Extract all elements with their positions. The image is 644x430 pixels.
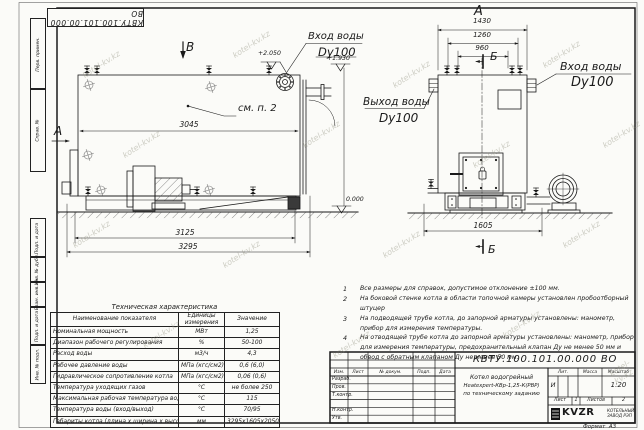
note-number: 2 xyxy=(343,294,360,314)
spec-cell-units: мм xyxy=(179,416,225,427)
spec-row: Рабочее давление водыМПа (кгс/см2)0,6 (6… xyxy=(51,360,280,371)
margin-label: Инв. № подл. xyxy=(36,348,41,380)
dim-960: 960 xyxy=(452,44,512,52)
spec-row: Температура уходящих газов°Сне более 250 xyxy=(51,382,280,393)
spec-cell-units: % xyxy=(179,338,225,349)
spec-col-value: Значение xyxy=(225,313,280,327)
rev-header-izm: Изм. xyxy=(330,370,348,375)
lit-label: Лит. xyxy=(548,370,578,375)
sign-row-razrab: Разраб. xyxy=(332,377,351,382)
sign-row-nkontr: Н.контр. xyxy=(332,408,353,413)
spec-cell-value: 70/95 xyxy=(225,405,280,416)
front-inlet-size: Dy100 xyxy=(571,75,614,90)
margin-label: Справ. № xyxy=(36,119,41,141)
sheet-value: 1 xyxy=(572,398,580,403)
spec-cell-units: °С xyxy=(179,405,225,416)
note-text: На подводящей трубе котла, до запорной а… xyxy=(360,314,635,334)
product-name-line3: по техническому заданию xyxy=(457,391,546,397)
dim-3295: 3295 xyxy=(158,242,218,251)
company-name: КОТЕЛЬНЫЙ ЗАВОД РЭП xyxy=(607,409,634,419)
front-outlet-label: Выход воды xyxy=(363,96,430,108)
side-inlet-size: Dy100 xyxy=(318,45,356,59)
spec-col-name: Наименование показателя xyxy=(51,313,179,327)
spec-row: Температура воды (вход/выход)°С70/95 xyxy=(51,405,280,416)
dim-1260: 1260 xyxy=(452,31,512,39)
note-item: 1Все размеры для справок, допустимое отк… xyxy=(343,284,635,294)
dim-1430: 1430 xyxy=(452,17,512,25)
note-number: 1 xyxy=(343,284,360,294)
drawing-sheet: kotel-kv.kzkotel-kv.kzkotel-kv.kzkotel-k… xyxy=(0,0,644,430)
note-text: На боковой стенке котла в области топочн… xyxy=(360,294,635,314)
margin-box-podp-data-2: Подп. и дата xyxy=(30,306,46,346)
margin-box-sprav: Справ. № xyxy=(30,88,46,172)
rev-header-list: Лист xyxy=(348,370,368,375)
scale-value: 1:20 xyxy=(602,381,635,389)
notes-list: 1Все размеры для справок, допустимое отк… xyxy=(343,284,635,363)
spec-col-units: Единицы измерения xyxy=(179,313,225,327)
side-inlet-label: Вход воды xyxy=(308,31,364,42)
sign-row-tkontr: Т.контр. xyxy=(332,393,353,398)
sheets-label: Листов xyxy=(580,398,612,403)
margin-label: Перв. примен. xyxy=(36,37,41,72)
rev-header-podp: Подп. xyxy=(413,370,435,375)
sign-row-prov: Пров. xyxy=(332,385,346,390)
spec-cell-value: 1,25 xyxy=(225,327,280,338)
mass-label: Масса xyxy=(578,370,602,375)
margin-box-podp-data-1: Подп. и дата xyxy=(30,218,46,258)
spec-cell-name: Рабочее давление воды xyxy=(51,360,179,371)
spec-cell-value: не более 250 xyxy=(225,382,280,393)
scale-label: Масштаб xyxy=(602,370,635,375)
spec-cell-units: °С xyxy=(179,394,225,405)
spec-cell-name: Диапазон рабочего регулирования xyxy=(51,338,179,349)
margin-label: Подп. и дата xyxy=(36,222,41,253)
spec-cell-name: Расход воды xyxy=(51,349,179,360)
elevation-0000: 0.000 xyxy=(346,196,364,203)
corner-stamp-text: КВТУ.100.101.00.000 ВО xyxy=(48,9,143,27)
elevation-2050: +2.050 xyxy=(258,50,281,57)
front-inlet-label: Вход воды xyxy=(560,60,621,73)
spec-row: Номинальная мощностьМВт1,25 xyxy=(51,327,280,338)
margin-box-inv-podl: Инв. № подл. xyxy=(30,344,46,384)
format-label-text: Формат xyxy=(583,424,605,430)
spec-cell-units: МПа (кгс/см2) xyxy=(179,360,225,371)
front-outlet-size: Dy100 xyxy=(379,111,418,125)
dim-3125: 3125 xyxy=(155,228,215,237)
margin-box-perv-primen: Перв. примен. xyxy=(30,18,46,90)
spec-table-title: Техническая характеристика xyxy=(50,303,279,311)
spec-row: Расход водым3/ч4,3 xyxy=(51,349,280,360)
spec-row: Гидравлическое сопротивление котлаМПа (к… xyxy=(51,371,280,382)
spec-row: Диапазон рабочего регулирования%50-100 xyxy=(51,338,280,349)
spec-cell-value: 4,3 xyxy=(225,349,280,360)
side-view xyxy=(52,42,362,257)
section-mark-b-top: Б xyxy=(490,50,498,63)
note-text: Все размеры для справок, допустимое откл… xyxy=(360,284,635,294)
rev-header-data: Дата xyxy=(435,370,455,375)
note-item: 2На боковой стенке котла в области топоч… xyxy=(343,294,635,314)
lit-value: И xyxy=(548,381,558,389)
dim-1605: 1605 xyxy=(455,221,511,230)
sheet-label: Лист xyxy=(548,398,572,403)
note-number: 3 xyxy=(343,314,360,334)
view-mark-a-side: А xyxy=(54,124,62,138)
view-mark-v: В xyxy=(186,40,194,54)
spec-row: Габариты котла (длина х ширина х высота)… xyxy=(51,416,280,427)
rev-header-dokum: № докум. xyxy=(368,370,413,375)
spec-row: Максимальная рабочая температура воды°С1… xyxy=(51,394,280,405)
spec-cell-value: 0,06 (0,6) xyxy=(225,371,280,382)
spec-header-row: Наименование показателя Единицы измерени… xyxy=(51,313,280,327)
product-name-line2: Heatexpert-КВр-1,25-К(РВР) xyxy=(456,383,547,389)
sheets-value: 2 xyxy=(612,398,635,403)
spec-cell-name: Габариты котла (длина х ширина х высота) xyxy=(51,416,179,427)
spec-cell-units: МВт xyxy=(179,327,225,338)
format-label: Формат А3 xyxy=(583,424,616,430)
spec-cell-name: Номинальная мощность xyxy=(51,327,179,338)
format-value-text: А3 xyxy=(609,424,616,430)
spec-cell-value: 50-100 xyxy=(225,338,280,349)
spec-cell-name: Температура уходящих газов xyxy=(51,382,179,393)
sign-row-utv: Утв. xyxy=(332,416,342,421)
corner-stamp: КВТУ.100.101.00.000 ВО xyxy=(47,8,144,27)
callout-see-p2: см. п. 2 xyxy=(238,103,277,114)
dim-3045: 3045 xyxy=(159,120,219,129)
spec-cell-name: Температура воды (вход/выход) xyxy=(51,405,179,416)
doc-number: КВТУ.100.101.00.000 ВО xyxy=(455,354,635,365)
spec-cell-value: 3295х1605х2050 xyxy=(225,416,280,427)
margin-label: Подп. и дата xyxy=(36,310,41,341)
spec-table: Наименование показателя Единицы измерени… xyxy=(50,312,280,428)
product-name-line1: Котел водогрейный xyxy=(457,374,546,381)
note-item: 3На подводящей трубе котла, до запорной … xyxy=(343,314,635,334)
note-number: 4 xyxy=(343,333,360,362)
spec-cell-value: 115 xyxy=(225,394,280,405)
spec-cell-value: 0,6 (6,0) xyxy=(225,360,280,371)
spec-cell-units: МПа (кгс/см2) xyxy=(179,371,225,382)
spec-cell-units: °С xyxy=(179,382,225,393)
spec-cell-units: м3/ч xyxy=(179,349,225,360)
spec-cell-name: Максимальная рабочая температура воды xyxy=(51,394,179,405)
margin-box-vzam-inv: Взам. инв. № xyxy=(30,281,46,308)
section-mark-b-bottom: Б xyxy=(488,243,496,256)
spec-cell-name: Гидравлическое сопротивление котла xyxy=(51,371,179,382)
kvzr-logo-text: KVZR xyxy=(562,407,594,418)
